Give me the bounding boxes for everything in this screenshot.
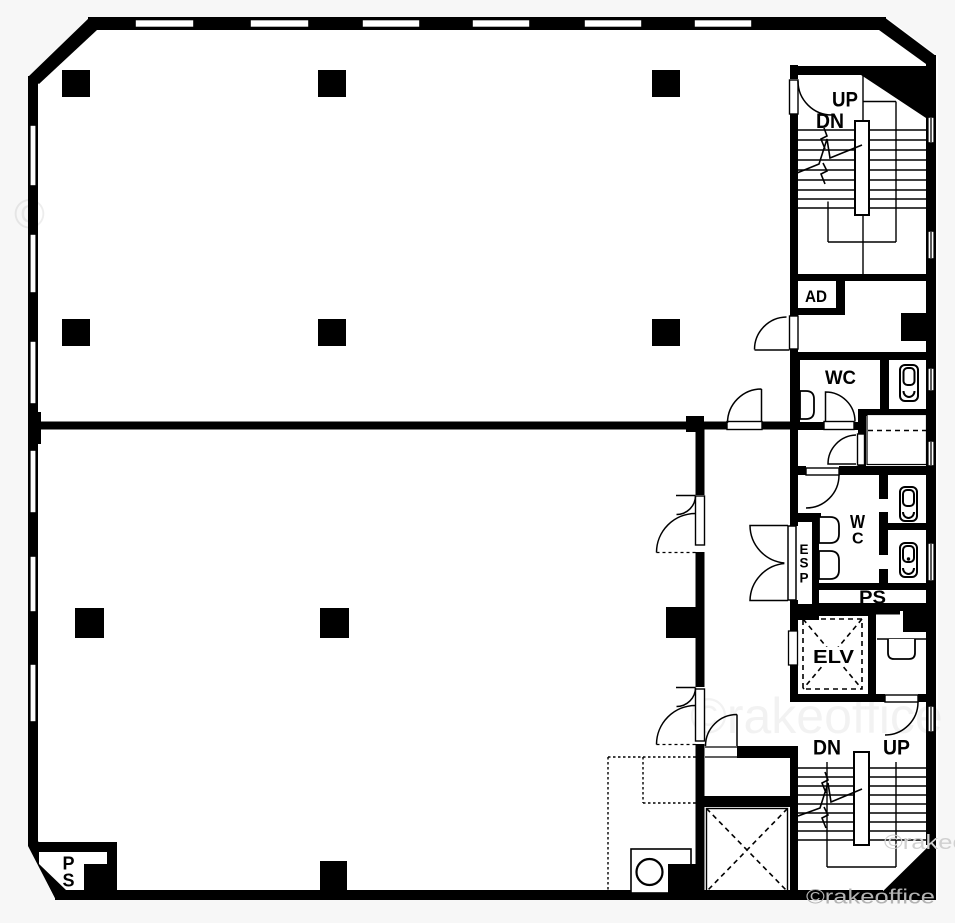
svg-text:©rakeoffice: ©rakeoffice xyxy=(884,831,955,854)
svg-text:WC: WC xyxy=(825,368,856,389)
svg-text:C: C xyxy=(852,531,864,548)
svg-text:ELV: ELV xyxy=(813,647,854,667)
svg-text:AD: AD xyxy=(805,287,827,306)
svg-text:DN: DN xyxy=(816,110,844,133)
svg-text:W: W xyxy=(850,512,865,532)
svg-text:PS: PS xyxy=(859,588,886,608)
svg-text:S: S xyxy=(799,556,808,571)
svg-text:UP: UP xyxy=(832,89,858,112)
svg-text:P: P xyxy=(799,571,808,586)
svg-text:UP: UP xyxy=(883,737,910,760)
svg-text:DN: DN xyxy=(813,737,841,760)
svg-text:S: S xyxy=(62,871,74,891)
svg-text:©rakeoffice: ©rakeoffice xyxy=(806,886,935,909)
